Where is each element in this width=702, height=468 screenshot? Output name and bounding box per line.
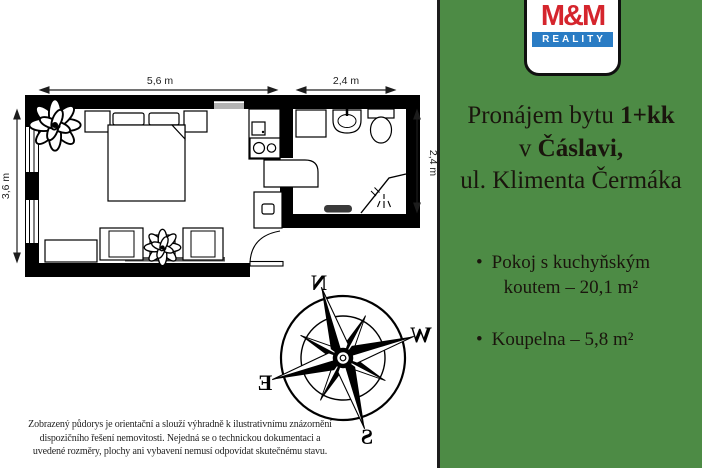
dim-top-bath: 2,4 m (333, 75, 360, 87)
toilet (368, 109, 394, 143)
title-line-1: Pronájem bytu 1+kk (440, 100, 702, 133)
entry-door (250, 231, 283, 266)
table-plant (144, 229, 180, 265)
disclaimer-line-1: Zobrazený půdorys je orientační a slouží… (4, 418, 356, 431)
corner-plant (29, 99, 80, 150)
compass-east-label: E (258, 370, 273, 395)
sitting-area (45, 228, 225, 262)
disclaimer-line-2: dispozičního řešení nemovitosti. Nejedná… (4, 432, 356, 445)
listing-details: • Pokoj s kuchyňským koutem – 20,1 m² • … (440, 250, 702, 353)
bed (85, 111, 207, 201)
dim-top-main: 5,6 m (147, 75, 174, 87)
bath-sink (333, 109, 361, 133)
info-panel: M&M REALITY Pronájem bytu 1+kk v Čáslavi… (437, 0, 702, 468)
bullet-bathroom: • Koupelna – 5,8 m² (440, 327, 702, 353)
logo-mm-text: M&M (527, 1, 618, 31)
bullet-room: • Pokoj s kuchyňským koutem – 20,1 m² (440, 250, 702, 301)
title-line-3: ul. Klimenta Čermáka (440, 165, 702, 198)
disclaimer-line-3: uvedené rozměry, plochy ani vybavení nem… (4, 445, 356, 458)
corner-shower (361, 174, 406, 213)
top-window (214, 100, 244, 109)
floorplan-panel: 5,6 m 2,4 m 3,6 m 2,4 m (0, 0, 437, 468)
bullet-dot: • (476, 250, 483, 301)
compass-north-label: N (311, 270, 327, 295)
listing-flyer: { "brand": { "logo_mm": "M&M", "logo_rea… (0, 0, 702, 468)
compass-south-label: S (361, 424, 373, 449)
listing-title: Pronájem bytu 1+kk v Čáslavi, ul. Klimen… (440, 100, 702, 198)
washing-machine (296, 110, 326, 137)
dim-right: 2,4 m (427, 150, 437, 177)
kitchen-counter (249, 109, 280, 159)
bath-mat (324, 205, 352, 213)
dim-left: 3,6 m (0, 173, 12, 200)
bathroom-door (264, 160, 318, 187)
logo-reality-banner: REALITY (532, 32, 613, 47)
bullet-dot: • (476, 327, 483, 353)
compass-west-label: W (410, 322, 432, 347)
mm-reality-logo: M&M REALITY (524, 0, 621, 76)
title-line-2: v Čáslavi, (440, 133, 702, 166)
water-heater (254, 192, 282, 228)
disclaimer-text: Zobrazený půdorys je orientační a slouží… (4, 418, 356, 458)
floorplan-drawing: 5,6 m 2,4 m 3,6 m 2,4 m (0, 0, 437, 468)
